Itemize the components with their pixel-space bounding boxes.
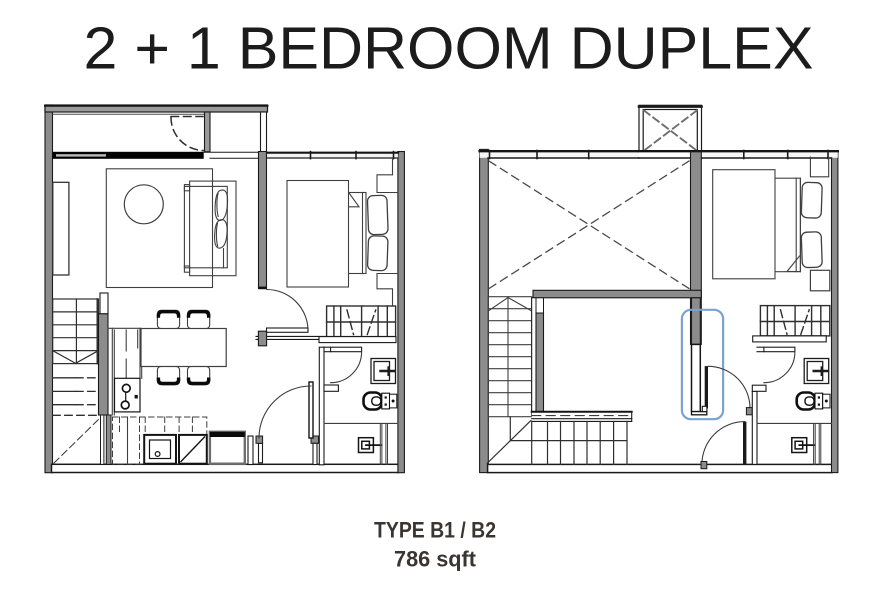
svg-text:786 sqft: 786 sqft: [394, 547, 476, 572]
svg-text:TYPE B1 / B2: TYPE B1 / B2: [374, 518, 496, 543]
svg-text:2 + 1 BEDROOM DUPLEX: 2 + 1 BEDROOM DUPLEX: [84, 16, 814, 82]
